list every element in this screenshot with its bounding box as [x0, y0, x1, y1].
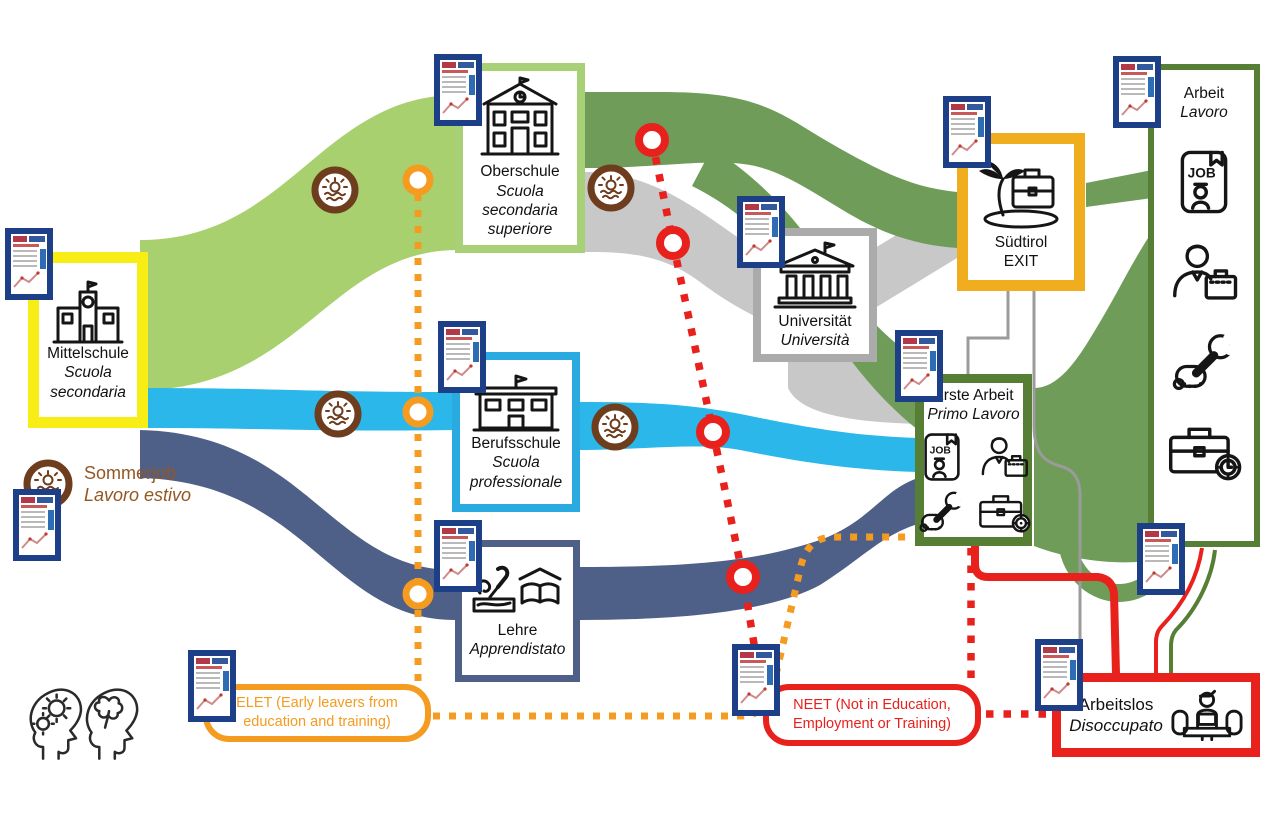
line-erstearbeit-arbeitslos	[975, 546, 1116, 674]
node-label: Arbeitslos Disoccupato	[1069, 694, 1163, 737]
neet-dotted-diagonal	[652, 140, 757, 662]
node-universitaet: Universität Università	[753, 228, 877, 362]
head-brain-icon	[87, 690, 137, 759]
elet-text: ELET (Early leavers from education and t…	[219, 694, 415, 732]
node-label-it: Università	[781, 331, 850, 350]
line-arbeitslos-arbeit-green	[1171, 550, 1215, 674]
node-label-it: Scuola professionale	[460, 453, 572, 492]
leave-region-icon	[973, 153, 1069, 233]
node-arbeit: Arbeit Lavoro JOB	[1148, 64, 1260, 547]
node-label-it: Apprendistato	[470, 640, 566, 659]
sommerjob-label-de: Sommerjob	[84, 462, 191, 485]
high-school-icon	[472, 76, 568, 162]
neet-label: NEET (Not in Education, Employment or Tr…	[763, 684, 981, 746]
node-label-it: Primo Lavoro	[927, 405, 1019, 424]
node-oberschule: Oberschule Scuola secondaria superiore	[455, 63, 585, 253]
node-erste-arbeit: Erste Arbeit Primo Lavoro JOB	[915, 374, 1032, 546]
flow-berufsschule-erstearbeit	[580, 402, 918, 472]
line-arbeit-arbeitslos-red	[1156, 548, 1202, 674]
elet-marker	[406, 400, 430, 424]
node-arbeitslos: Arbeitslos Disoccupato	[1052, 673, 1260, 757]
neet-marker	[639, 127, 665, 153]
wrench-hand-icon	[1170, 329, 1238, 393]
businessman-icon	[978, 434, 1030, 480]
neet-marker	[660, 230, 686, 256]
apprenticeship-icon	[472, 563, 564, 621]
middle-school-icon	[46, 278, 130, 344]
node-label-de: Lehre	[498, 621, 538, 640]
node-label-it: Scuola secondaria	[39, 363, 137, 402]
elet-label: ELET (Early leavers from education and t…	[203, 684, 431, 742]
node-label-de: Universität	[778, 312, 851, 331]
svg-text:JOB: JOB	[1188, 165, 1216, 180]
node-berufsschule: Berufsschule Scuola professionale	[452, 352, 580, 512]
node-suedtirol-exit: Südtirol EXIT	[957, 133, 1085, 291]
elet-marker	[406, 582, 430, 606]
sommerjob-marker	[315, 170, 355, 210]
node-lehre: Lehre Apprendistato	[455, 540, 580, 682]
job-ad-icon: JOB	[1178, 149, 1230, 215]
university-icon	[767, 240, 863, 312]
businessman-icon	[1168, 241, 1240, 303]
flow-mittelschule-oberschule	[140, 95, 458, 390]
flow-oberschule-exit	[584, 92, 957, 248]
flow-mittelschule-berufsschule	[140, 388, 456, 431]
sankey-diagram-education-paths: Mittelschule Scuola secondaria Oberschul…	[0, 0, 1262, 827]
flow-exit-arbeit	[1086, 170, 1152, 207]
sommerjob-legend: Sommerjob Lavoro estivo	[22, 458, 191, 510]
node-label-it: Scuola secondaria superiore	[463, 182, 577, 240]
thinking-heads-icon	[14, 668, 140, 769]
node-label-de: Berufsschule	[471, 434, 561, 453]
vocational-school-icon	[468, 372, 564, 434]
node-label-de: Mittelschule	[47, 344, 129, 363]
neet-marker	[730, 564, 756, 590]
summer-job-icon	[22, 458, 74, 510]
node-label-line2: EXIT	[1004, 252, 1038, 271]
node-label-de: Arbeitslos	[1069, 694, 1163, 715]
briefcase-gear-icon	[977, 489, 1031, 533]
sommerjob-marker	[591, 168, 631, 208]
flow-universitaet-erstearbeit	[788, 358, 918, 424]
neet-marker	[700, 419, 726, 445]
head-gears-icon	[31, 690, 81, 759]
node-label-de: Oberschule	[480, 162, 559, 181]
job-ad-icon: JOB	[922, 432, 962, 482]
elet-marker	[406, 168, 430, 192]
briefcase-clock-icon	[1166, 419, 1242, 481]
sommerjob-marker	[595, 407, 635, 447]
node-mittelschule: Mittelschule Scuola secondaria	[28, 252, 148, 428]
node-label-line1: Südtirol	[995, 233, 1048, 252]
person-on-sofa-icon	[1171, 688, 1243, 742]
line-exit-erstearbeit	[968, 291, 1008, 374]
neet-text: NEET (Not in Education, Employment or Tr…	[779, 696, 965, 734]
node-label-it: Lavoro	[1180, 103, 1227, 122]
sommerjob-label-it: Lavoro estivo	[84, 484, 191, 507]
wrench-hand-icon	[917, 488, 967, 534]
svg-text:JOB: JOB	[929, 446, 950, 457]
node-label-it: Disoccupato	[1069, 715, 1163, 736]
sommerjob-marker	[318, 394, 358, 434]
flow-lehre-erstearbeit	[580, 478, 918, 620]
node-label-de: Erste Arbeit	[933, 386, 1013, 405]
node-label-de: Arbeit	[1184, 84, 1225, 103]
line-exit-arbeitslos	[1034, 291, 1080, 674]
